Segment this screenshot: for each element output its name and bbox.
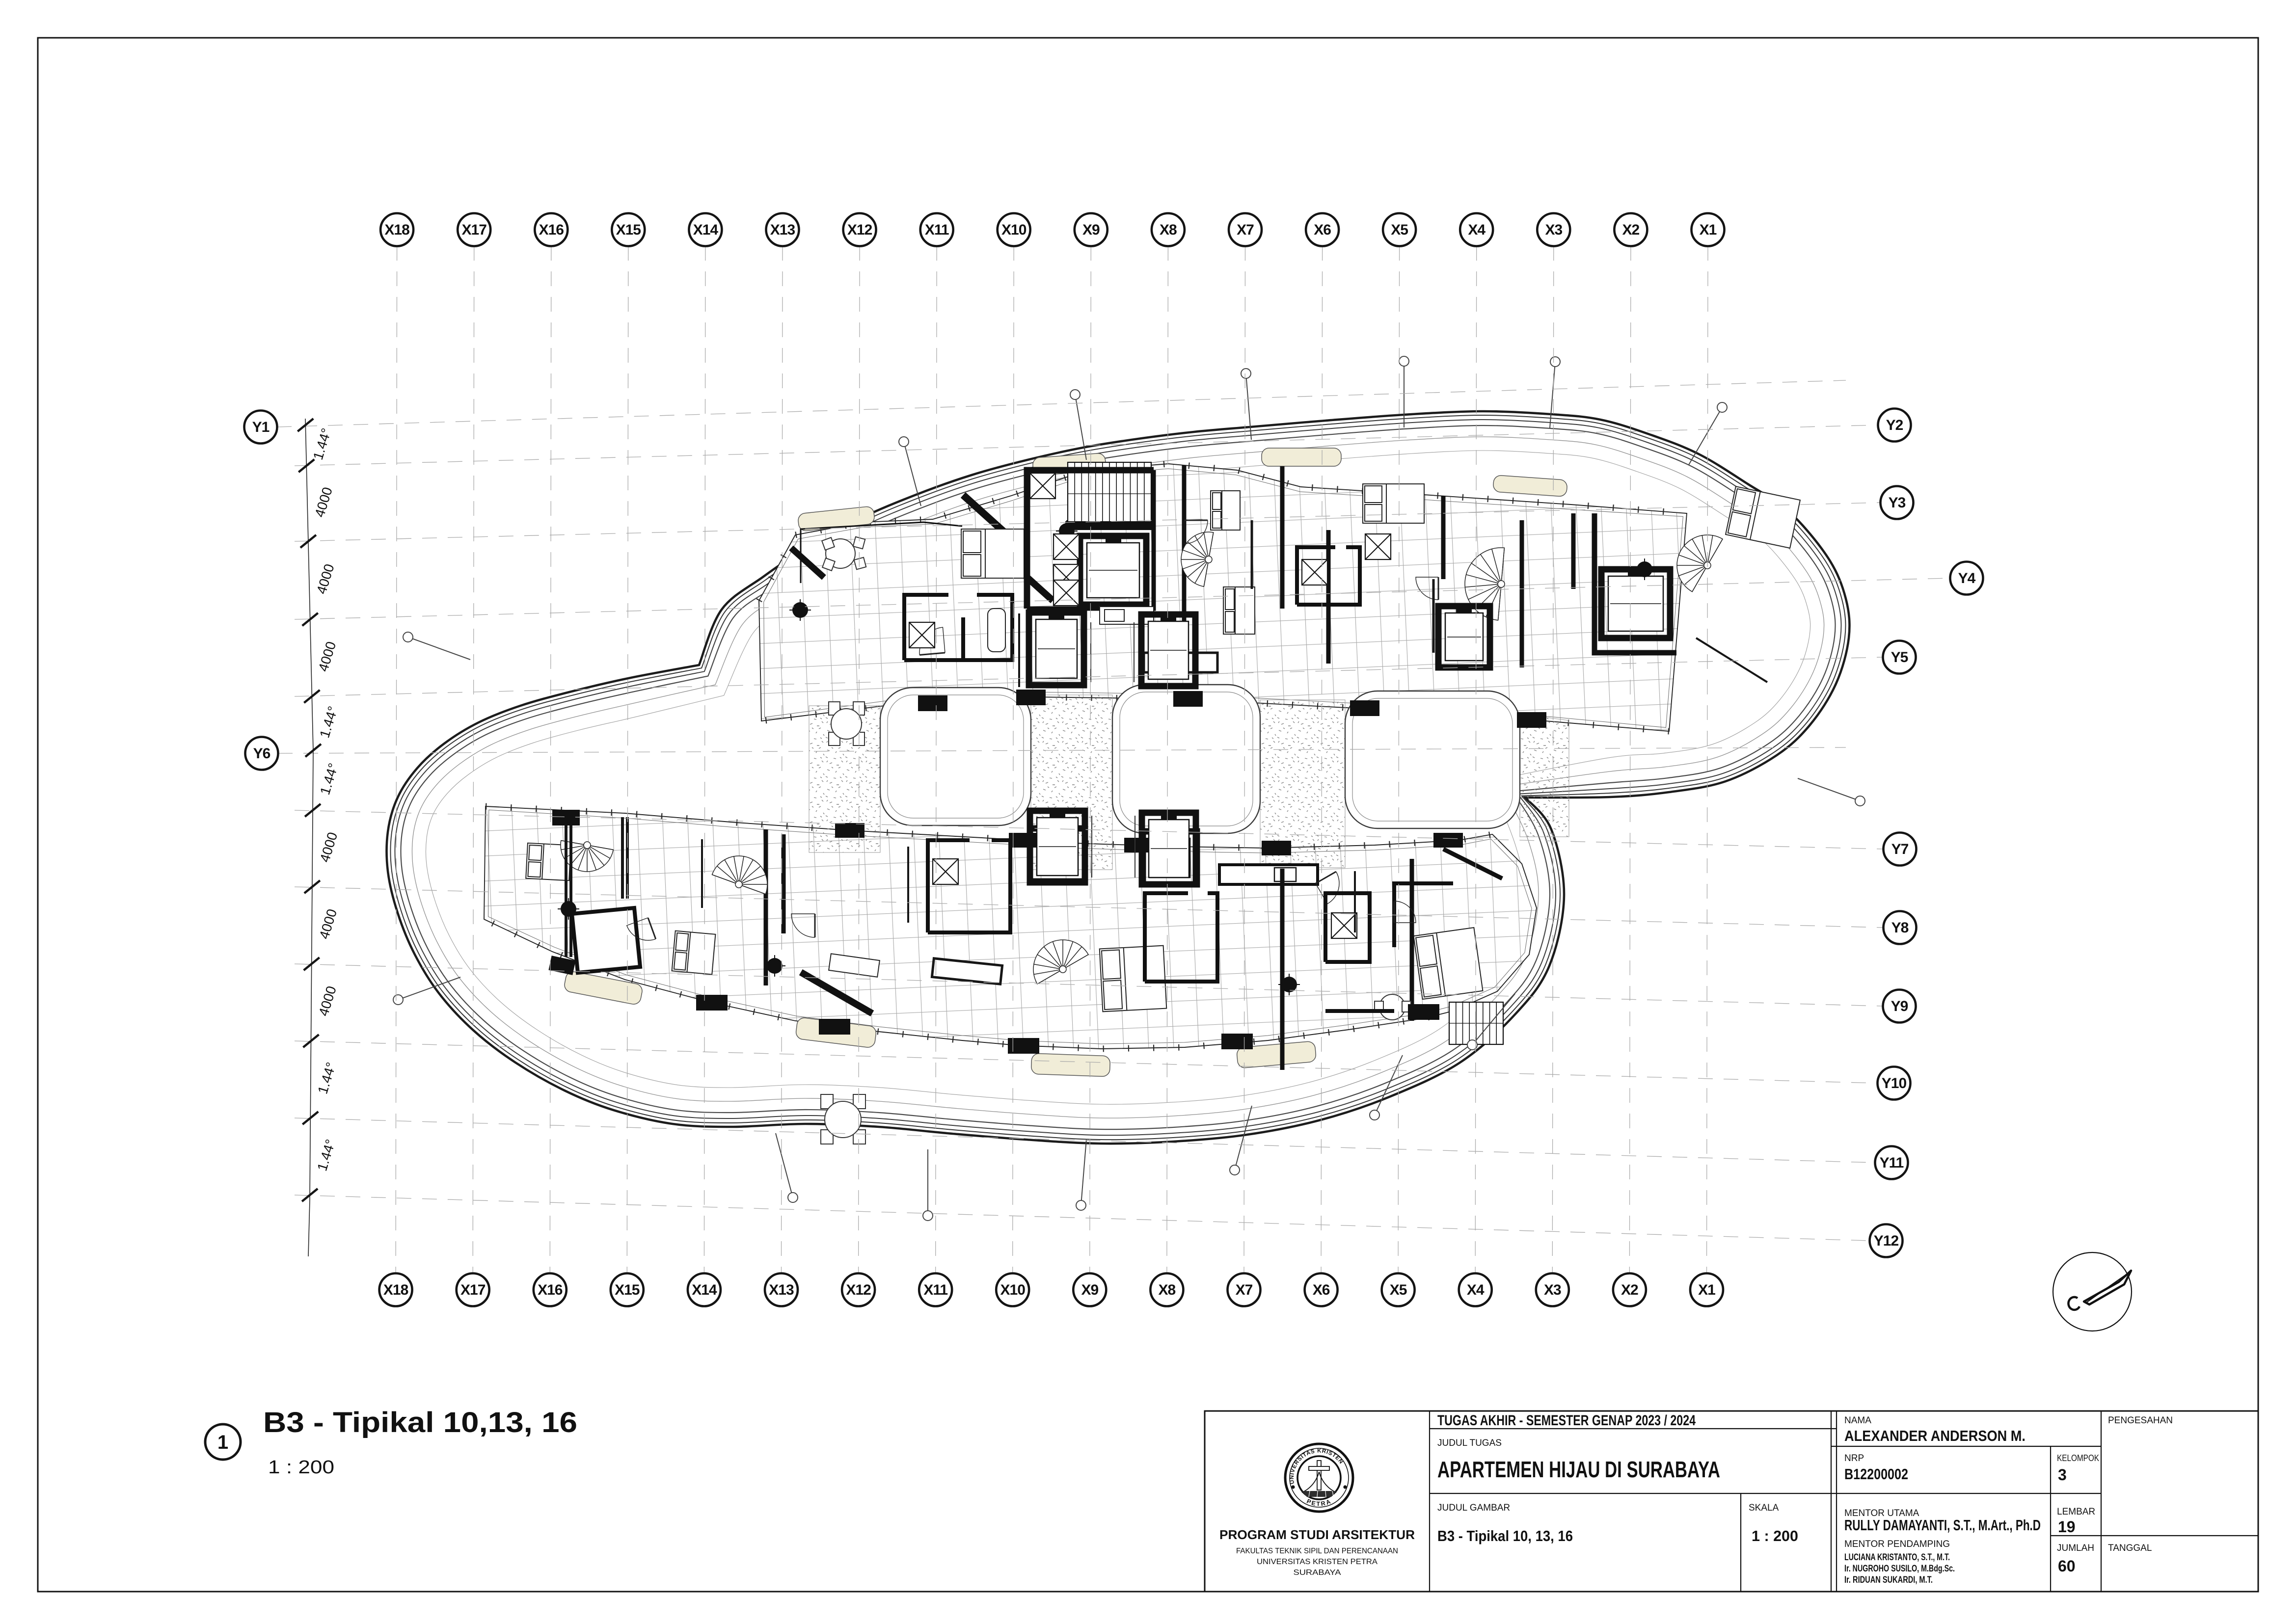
- svg-text:X16: X16: [538, 1282, 563, 1298]
- svg-text:3: 3: [2058, 1466, 2067, 1484]
- svg-text:X2: X2: [1621, 1282, 1638, 1298]
- svg-text:X13: X13: [769, 1282, 794, 1298]
- svg-text:X2: X2: [1622, 222, 1640, 238]
- svg-text:X12: X12: [846, 1282, 871, 1298]
- svg-text:X4: X4: [1467, 1282, 1485, 1298]
- svg-text:X15: X15: [616, 222, 641, 238]
- svg-text:19: 19: [2058, 1518, 2076, 1536]
- svg-text:Ir. RIDUAN SUKARDI, M.T.: Ir. RIDUAN SUKARDI, M.T.: [1844, 1575, 1933, 1585]
- svg-text:SURABAYA: SURABAYA: [1294, 1569, 1341, 1577]
- svg-text:JUDUL TUGAS: JUDUL TUGAS: [1437, 1438, 1502, 1448]
- svg-text:Y4: Y4: [1958, 570, 1976, 586]
- svg-text:1 : 200: 1 : 200: [1752, 1527, 1798, 1544]
- svg-text:X3: X3: [1544, 1282, 1561, 1298]
- svg-text:SKALA: SKALA: [1749, 1503, 1779, 1513]
- svg-text:Y6: Y6: [253, 745, 270, 762]
- svg-text:X18: X18: [383, 1282, 408, 1298]
- svg-text:X17: X17: [460, 1282, 486, 1298]
- svg-text:Y2: Y2: [1886, 417, 1903, 433]
- svg-text:B12200002: B12200002: [1844, 1465, 1908, 1483]
- svg-text:X1: X1: [1700, 222, 1717, 238]
- svg-text:Y8: Y8: [1891, 920, 1909, 936]
- svg-text:X14: X14: [693, 222, 719, 238]
- svg-text:Y10: Y10: [1882, 1075, 1907, 1091]
- svg-text:X13: X13: [770, 222, 795, 238]
- svg-text:X16: X16: [539, 222, 564, 238]
- svg-text:X14: X14: [692, 1282, 717, 1298]
- svg-text:X4: X4: [1468, 222, 1486, 238]
- svg-text:Y1: Y1: [252, 419, 270, 435]
- svg-text:B3 - Tipikal 10,13, 16: B3 - Tipikal 10,13, 16: [263, 1407, 577, 1438]
- svg-text:X5: X5: [1390, 1282, 1407, 1298]
- svg-text:X17: X17: [462, 222, 487, 238]
- svg-text:TUGAS AKHIR - SEMESTER GENAP 2: TUGAS AKHIR - SEMESTER GENAP 2023 / 2024: [1437, 1412, 1696, 1429]
- svg-text:APARTEMEN HIJAU DI SURABAYA: APARTEMEN HIJAU DI SURABAYA: [1437, 1457, 1720, 1482]
- svg-text:Y7: Y7: [1891, 841, 1909, 857]
- svg-text:X5: X5: [1391, 222, 1408, 238]
- svg-text:X15: X15: [615, 1282, 640, 1298]
- svg-text:X6: X6: [1313, 1282, 1330, 1298]
- svg-text:X12: X12: [847, 222, 872, 238]
- svg-text:ALEXANDER ANDERSON M.: ALEXANDER ANDERSON M.: [1844, 1427, 2026, 1444]
- svg-text:X1: X1: [1698, 1282, 1715, 1298]
- svg-text:X8: X8: [1159, 1282, 1176, 1298]
- svg-text:PENGESAHAN: PENGESAHAN: [2108, 1415, 2173, 1426]
- svg-text:X11: X11: [923, 1282, 947, 1298]
- svg-text:KELOMPOK: KELOMPOK: [2057, 1453, 2099, 1463]
- svg-text:1: 1: [217, 1432, 228, 1453]
- svg-text:UNIVERSITAS KRISTEN PETRA: UNIVERSITAS KRISTEN PETRA: [1257, 1558, 1378, 1566]
- svg-text:60: 60: [2058, 1557, 2076, 1575]
- svg-text:PROGRAM STUDI ARSITEKTUR: PROGRAM STUDI ARSITEKTUR: [1219, 1527, 1415, 1542]
- svg-text:Y12: Y12: [1874, 1233, 1899, 1249]
- svg-text:X8: X8: [1160, 222, 1177, 238]
- svg-text:B3 - Tipikal 10, 13, 16: B3 - Tipikal 10, 13, 16: [1437, 1527, 1573, 1544]
- svg-text:Y3: Y3: [1889, 495, 1906, 511]
- svg-text:JUMLAH: JUMLAH: [2057, 1543, 2094, 1553]
- svg-text:X9: X9: [1082, 222, 1100, 238]
- svg-text:NRP: NRP: [1844, 1453, 1864, 1463]
- svg-text:NAMA: NAMA: [1844, 1415, 1871, 1426]
- svg-text:TANGGAL: TANGGAL: [2108, 1543, 2152, 1553]
- svg-text:JUDUL GAMBAR: JUDUL GAMBAR: [1437, 1503, 1510, 1513]
- svg-text:RULLY DAMAYANTI, S.T., M.Art.,: RULLY DAMAYANTI, S.T., M.Art., Ph.D: [1844, 1517, 2041, 1534]
- svg-text:X18: X18: [384, 222, 409, 238]
- svg-text:X7: X7: [1236, 1282, 1253, 1298]
- svg-text:Y9: Y9: [1891, 998, 1908, 1014]
- svg-text:LEMBAR: LEMBAR: [2057, 1507, 2095, 1517]
- svg-text:X6: X6: [1314, 222, 1331, 238]
- svg-text:X11: X11: [925, 222, 949, 238]
- svg-text:X10: X10: [1000, 1282, 1026, 1298]
- svg-text:X3: X3: [1545, 222, 1562, 238]
- svg-text:MENTOR PENDAMPING: MENTOR PENDAMPING: [1844, 1539, 1950, 1549]
- svg-text:Ir. NUGROHO SUSILO, M.Bdg.Sc.: Ir. NUGROHO SUSILO, M.Bdg.Sc.: [1844, 1564, 1955, 1574]
- svg-text:FAKULTAS TEKNIK SIPIL DAN PERE: FAKULTAS TEKNIK SIPIL DAN PERENCANAAN: [1236, 1547, 1398, 1555]
- svg-text:X9: X9: [1081, 1282, 1098, 1298]
- svg-text:1 : 200: 1 : 200: [268, 1457, 334, 1478]
- svg-text:Y5: Y5: [1891, 649, 1908, 665]
- svg-text:Y11: Y11: [1880, 1155, 1904, 1171]
- svg-text:X10: X10: [1001, 222, 1026, 238]
- svg-text:LUCIANA KRISTANTO, S.T., M.T.: LUCIANA KRISTANTO, S.T., M.T.: [1844, 1552, 1950, 1563]
- svg-text:X7: X7: [1237, 222, 1254, 238]
